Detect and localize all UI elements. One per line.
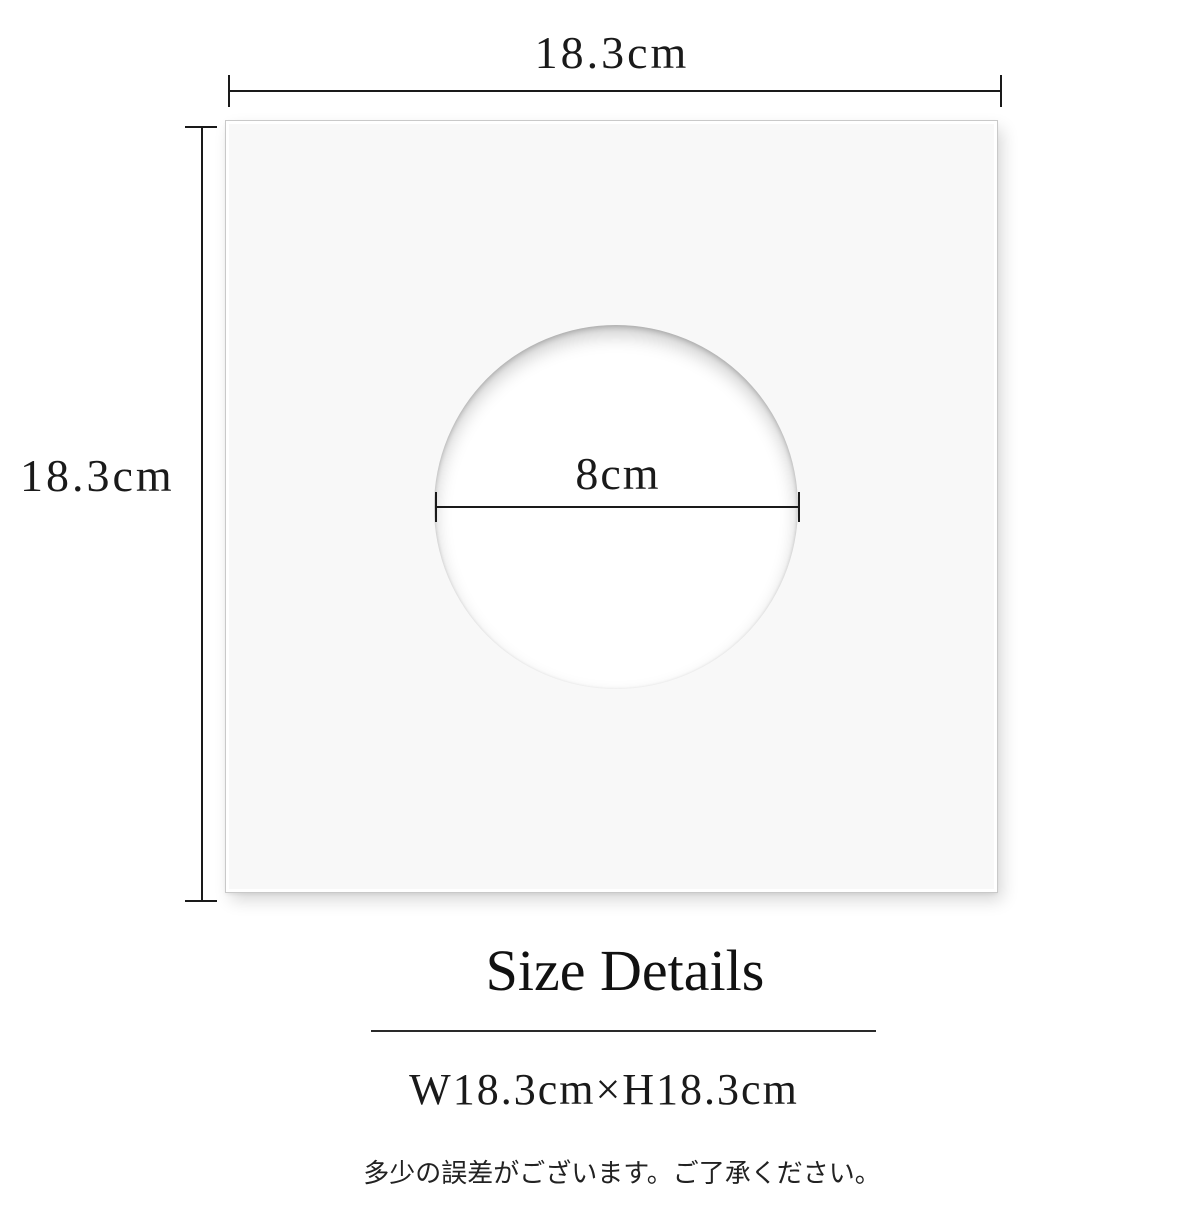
height-dimension-label: 18.3cm xyxy=(20,453,175,499)
height-dimension-line xyxy=(201,127,203,901)
title-divider xyxy=(371,1030,876,1032)
height-dimension-tick-bottom xyxy=(185,900,217,902)
dimensions-text: W18.3cm×H18.3cm xyxy=(304,1068,904,1112)
width-dimension-tick-right xyxy=(1000,75,1002,107)
hole-diameter-tick-right xyxy=(798,492,800,522)
width-dimension-line xyxy=(229,90,1001,92)
hole-diameter-tick-left xyxy=(435,492,437,522)
size-details-title: Size Details xyxy=(325,942,925,1000)
width-dimension-tick-left xyxy=(228,75,230,107)
hole-diameter-line xyxy=(436,506,800,508)
height-dimension-tick-top xyxy=(185,126,217,128)
width-dimension-label: 18.3cm xyxy=(212,30,1012,76)
hole-diameter-label: 8cm xyxy=(436,451,800,497)
size-diagram-page: 18.3cm 18.3cm 8cm Size Details W18.3cm×H… xyxy=(0,0,1200,1212)
tolerance-note: 多少の誤差がございます。ご了承ください。 xyxy=(322,1157,922,1191)
